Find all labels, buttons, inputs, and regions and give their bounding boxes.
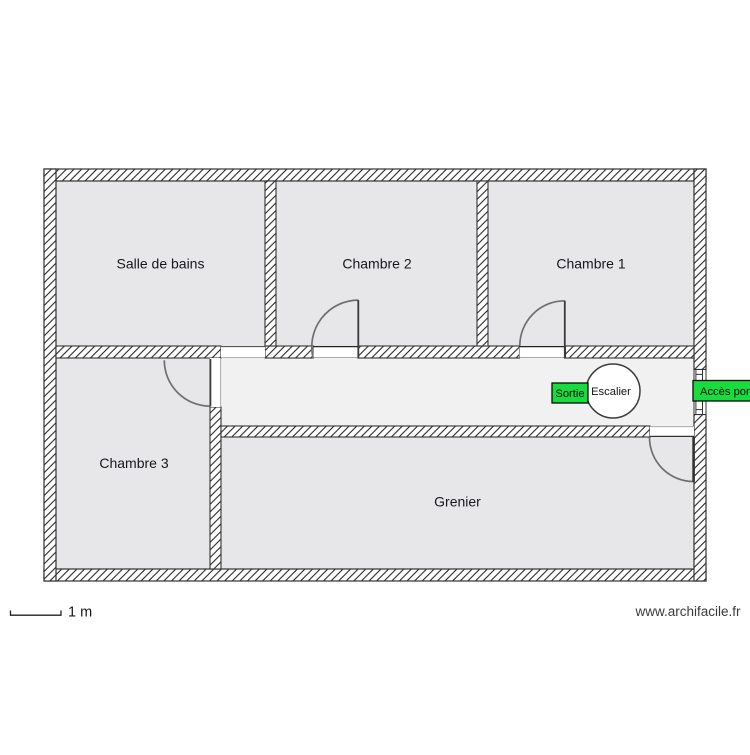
svg-text:Sortie: Sortie [555, 388, 584, 400]
svg-text:Accès pompier: Accès pompier [700, 386, 750, 398]
svg-text:Salle de bains: Salle de bains [117, 255, 205, 271]
svg-text:Chambre 2: Chambre 2 [342, 255, 411, 271]
svg-text:www.archifacile.fr: www.archifacile.fr [634, 604, 741, 619]
svg-text:Chambre 3: Chambre 3 [99, 455, 168, 471]
svg-text:1 m: 1 m [68, 605, 92, 621]
svg-text:Grenier: Grenier [434, 494, 481, 510]
svg-text:Chambre 1: Chambre 1 [556, 255, 625, 271]
svg-text:Escalier: Escalier [591, 386, 631, 398]
